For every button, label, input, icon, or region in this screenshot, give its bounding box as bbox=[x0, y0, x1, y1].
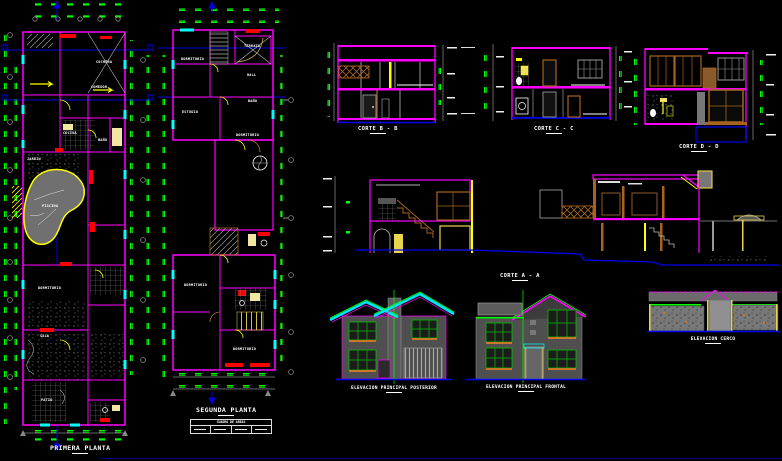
section-a-a bbox=[322, 168, 782, 280]
title-block-cell bbox=[232, 426, 252, 433]
room-label: BAÑO bbox=[98, 138, 107, 142]
structure bbox=[338, 45, 435, 123]
elevation-rear-label: ELEVACION PRINCIPAL POSTERIOR bbox=[328, 386, 460, 393]
room-label: DORMITORIO bbox=[38, 286, 61, 290]
lower-floor bbox=[647, 90, 747, 142]
room-label: BAÑO bbox=[248, 99, 257, 103]
room-label: COCINA bbox=[63, 131, 77, 135]
room-label: ESTUDIO bbox=[182, 110, 198, 114]
left-dims bbox=[323, 176, 350, 253]
room-label: PISCINA bbox=[42, 204, 58, 208]
room-label: COCHERA bbox=[96, 60, 112, 64]
dimension-strings bbox=[162, 8, 283, 396]
room-label: TERRAZA bbox=[244, 44, 260, 48]
flat-roof bbox=[478, 303, 522, 315]
right-dims bbox=[753, 50, 776, 140]
upper-floor bbox=[514, 60, 605, 86]
second-floor-title: SEGUNDA PLANTA bbox=[196, 406, 256, 416]
cad-canvas: PRIMERA PLANTA SEGUNDA PLANTA CORTE B - … bbox=[0, 0, 782, 461]
gate bbox=[709, 300, 731, 331]
section-b-b bbox=[325, 33, 483, 133]
first-floor-title: PRIMERA PLANTA bbox=[50, 444, 110, 454]
room-label: HALL bbox=[247, 73, 256, 77]
elevation-front-label: ELEVACION PRINCIPAL FRONTAL bbox=[462, 385, 590, 392]
terrace-roof-projection bbox=[235, 36, 271, 64]
title-block-cell bbox=[211, 426, 231, 433]
room-label: DORMITORIO bbox=[236, 133, 259, 137]
room-label: DORMITORIO bbox=[181, 57, 204, 61]
section-d-label: CORTE D - D bbox=[679, 144, 719, 152]
room-label: COMEDOR bbox=[91, 85, 107, 89]
title-block-table: CUADRO DE AREAS bbox=[190, 419, 272, 434]
section-c-c bbox=[483, 36, 633, 133]
right-block bbox=[540, 171, 712, 253]
first-floor-plan bbox=[0, 0, 160, 461]
lower-floor bbox=[516, 92, 607, 117]
dim-ticks bbox=[327, 45, 330, 117]
upper-floor bbox=[650, 56, 744, 88]
section-d-d bbox=[633, 40, 782, 152]
garage-door bbox=[404, 348, 442, 378]
right-dims bbox=[438, 45, 475, 121]
room-label: PATIO bbox=[41, 398, 53, 402]
elevation-fence-label: ELEVACION CERCO bbox=[648, 337, 778, 344]
elevation-rear bbox=[328, 290, 460, 386]
left-block bbox=[370, 180, 473, 253]
side-door bbox=[378, 360, 390, 378]
bottom-ground-line bbox=[100, 458, 782, 459]
room-label: SALA bbox=[40, 334, 49, 338]
room-label: DORMITORIO bbox=[233, 347, 256, 351]
yard bbox=[700, 215, 777, 262]
room-label: JARDIN bbox=[27, 157, 41, 161]
right-dims bbox=[616, 46, 632, 121]
section-a-label: CORTE A - A bbox=[500, 273, 540, 281]
title-block-cell bbox=[191, 426, 211, 433]
section-c-label: CORTE C - C bbox=[534, 126, 574, 134]
section-b-label: CORTE B - B bbox=[358, 126, 398, 134]
grid-bubbles bbox=[283, 98, 293, 375]
title-block-cell bbox=[252, 426, 271, 433]
elevation-front bbox=[460, 290, 592, 386]
room-label: DORMITORIO bbox=[184, 283, 207, 287]
